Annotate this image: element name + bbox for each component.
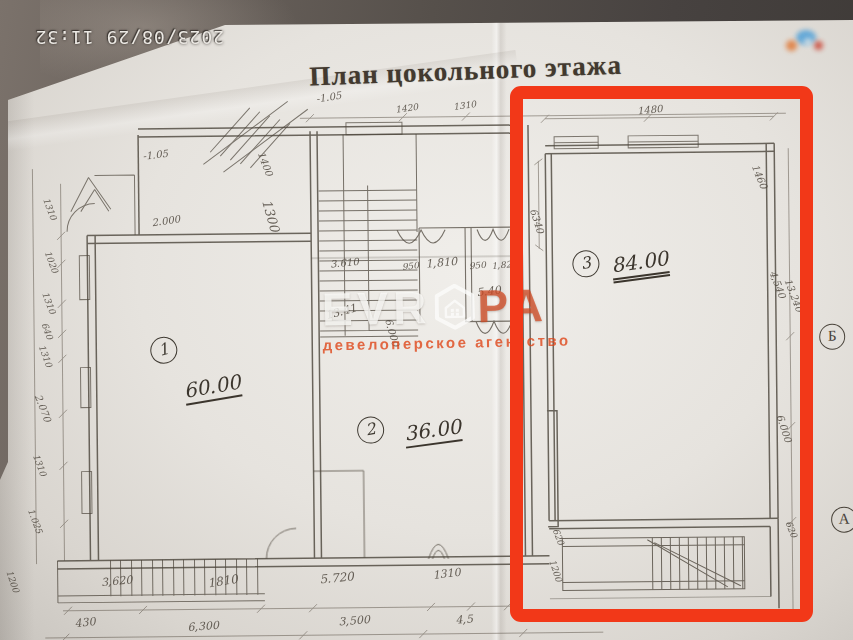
dimension-label: 4,5 [455,612,473,626]
door-arcs [266,527,448,561]
dimension-label: 6,300 [187,619,219,634]
top-left-structures [66,175,135,236]
hexagon-house-icon [434,283,475,330]
dimension-label: 430 [74,615,96,630]
dimension-label: 1,82 [491,259,512,271]
axis-marker: А [831,507,853,533]
highlight-rectangle [510,86,813,622]
axis-marker: Б [819,324,845,350]
logo-blob-red [814,41,823,50]
photo-of-floor-plan: План цокольного этажа 142013101480146063… [0,0,853,640]
logo-blob-white [804,38,812,46]
camera-timestamp: 2023/08/29 11:32 [22,18,224,48]
watermark-brand-prefix: EVR [321,284,432,332]
dimension-label: 950 [401,260,419,272]
dimension-label: 950 [468,260,486,272]
small-colorful-logo [784,26,836,62]
dimension-label: 3,500 [338,613,370,628]
logo-blob-orange [786,40,797,51]
